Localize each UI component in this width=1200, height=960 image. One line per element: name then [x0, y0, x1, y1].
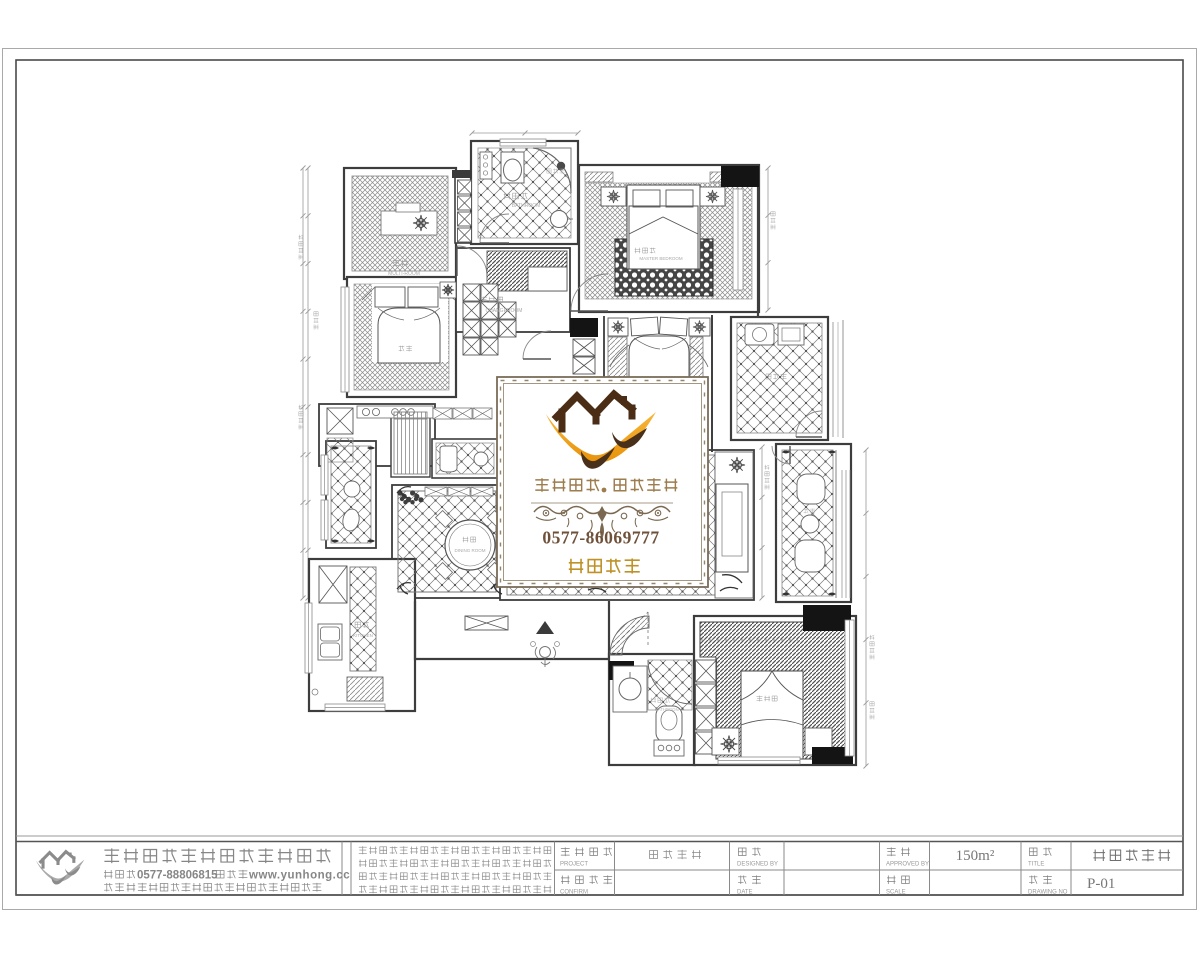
svg-text:150m²: 150m²	[956, 848, 995, 864]
svg-text:DINING ROOM: DINING ROOM	[455, 548, 486, 553]
svg-text:CONFIRM: CONFIRM	[560, 890, 588, 896]
svg-text:BATHROOM: BATHROOM	[512, 203, 541, 209]
svg-text:www.yunhong.cc: www.yunhong.cc	[248, 870, 350, 882]
svg-text:DRAWING NO: DRAWING NO	[1028, 890, 1068, 896]
svg-text:MULTI-ROOM: MULTI-ROOM	[388, 271, 420, 277]
svg-text:KITCHEN: KITCHEN	[353, 633, 373, 638]
svg-text:0577-88806815: 0577-88806815	[137, 870, 218, 882]
svg-text:SCALE: SCALE	[886, 890, 906, 896]
svg-text:CHANGEROOM: CHANGEROOM	[486, 308, 523, 314]
svg-text:TITLE: TITLE	[1028, 862, 1044, 868]
svg-text:PROJECT: PROJECT	[560, 862, 588, 868]
svg-text:0577-86069777: 0577-86069777	[542, 528, 659, 548]
svg-text:BATHROOM: BATHROOM	[655, 707, 679, 712]
svg-text:DATE: DATE	[737, 890, 753, 896]
svg-text:DESIGNED BY: DESIGNED BY	[737, 862, 778, 868]
svg-text:MASTER BEDROOM: MASTER BEDROOM	[639, 256, 683, 261]
svg-text:P-01: P-01	[1087, 876, 1115, 892]
svg-text:APPROVED BY: APPROVED BY	[886, 862, 929, 868]
